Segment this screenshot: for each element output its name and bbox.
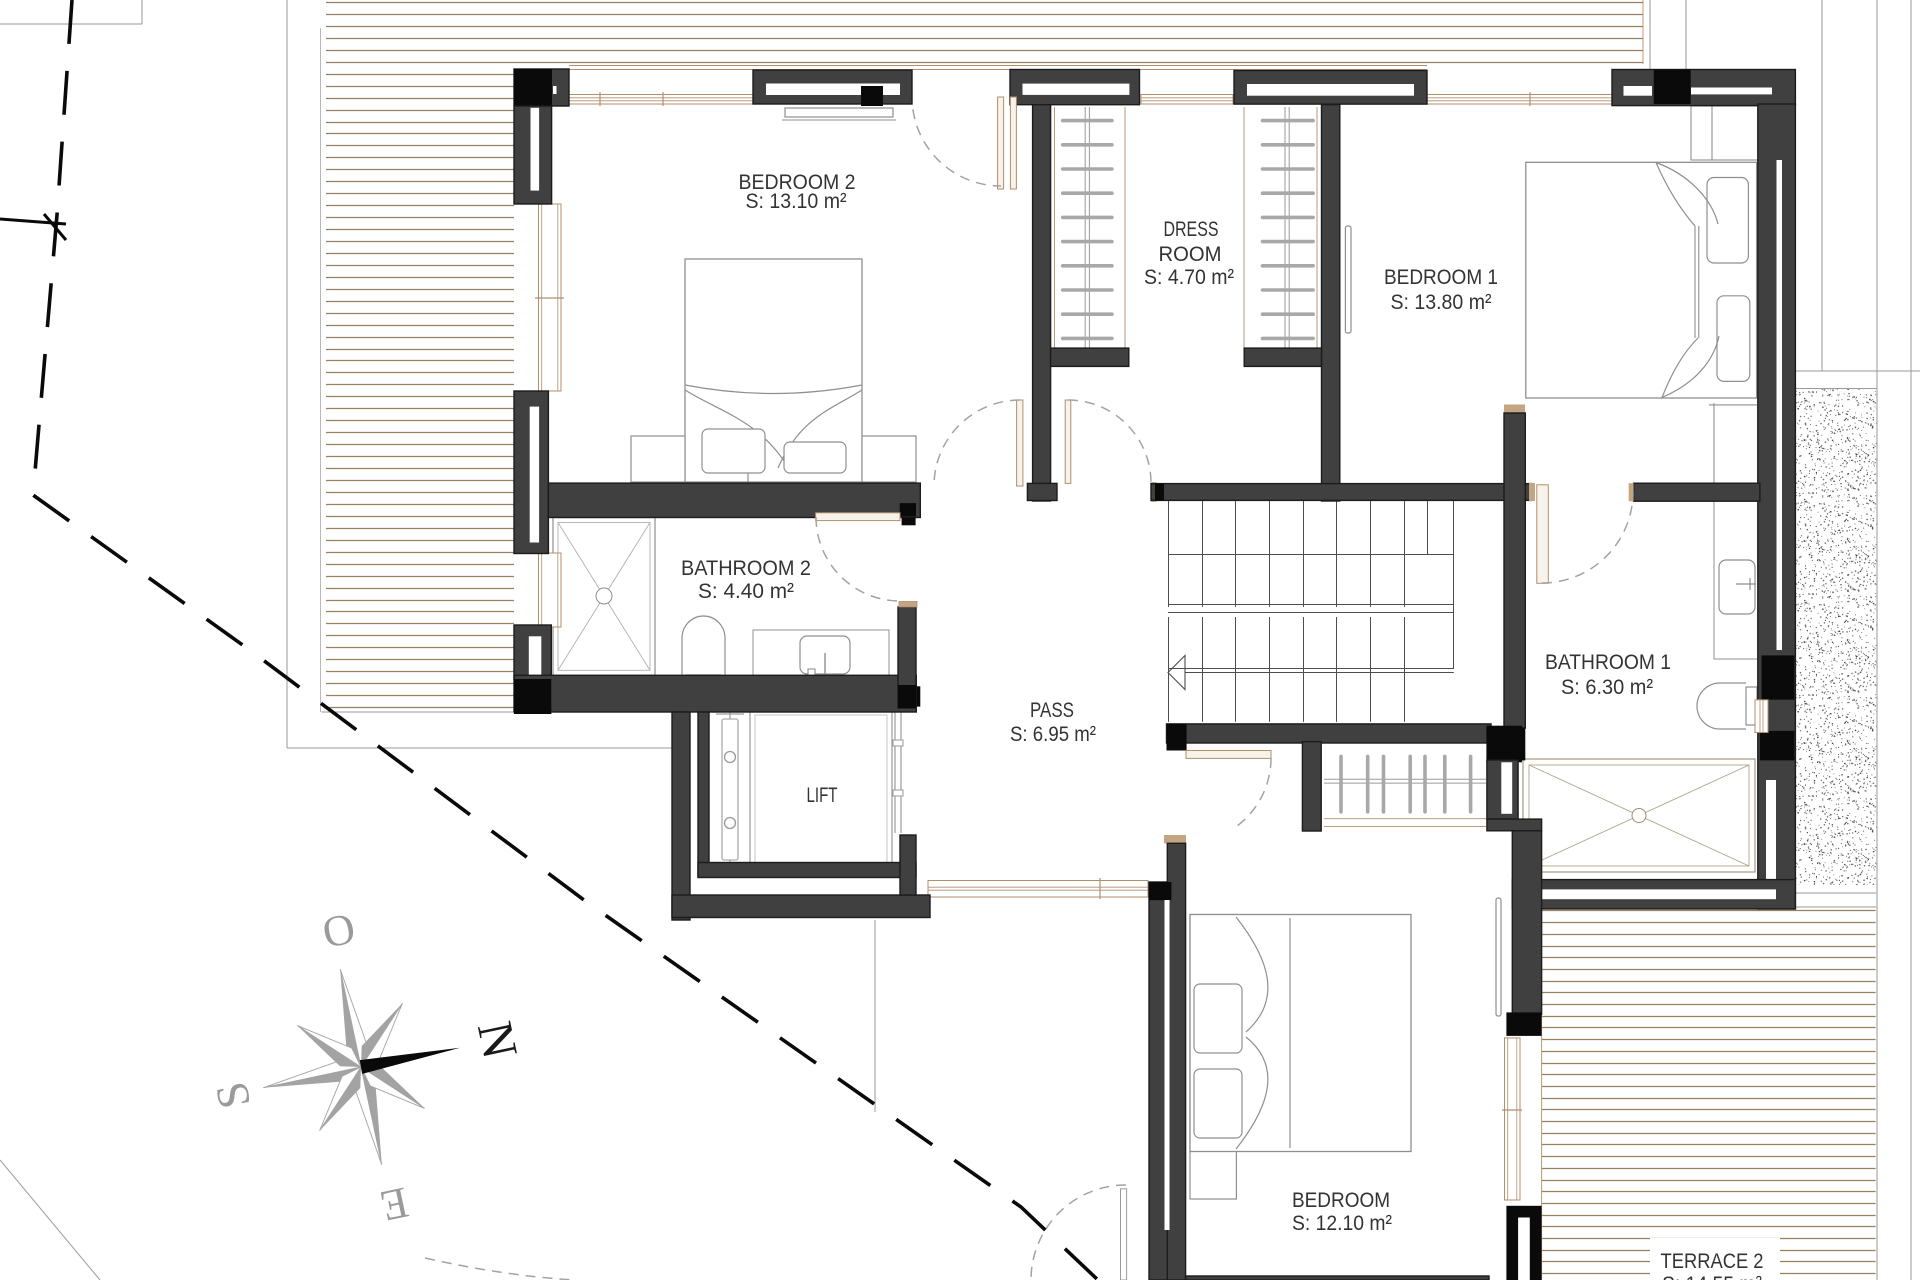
svg-text:LIFT: LIFT	[807, 784, 838, 807]
svg-text:TERRACE 2: TERRACE 2	[1661, 1249, 1764, 1273]
svg-text:BEDROOM 1: BEDROOM 1	[1384, 265, 1498, 289]
svg-text:PASS: PASS	[1030, 698, 1074, 722]
svg-text:BEDROOM: BEDROOM	[1292, 1188, 1390, 1212]
svg-text:ROOM: ROOM	[1159, 242, 1222, 266]
svg-text:S: 13.10 m²: S: 13.10 m²	[746, 189, 847, 213]
svg-text:BATHROOM 2: BATHROOM 2	[681, 556, 811, 580]
svg-text:S: 4.40 m²: S: 4.40 m²	[698, 579, 794, 603]
svg-text:DRESS: DRESS	[1164, 217, 1219, 241]
svg-text:S: 12.10 m²: S: 12.10 m²	[1292, 1211, 1392, 1235]
svg-text:S: 6.30 m²: S: 6.30 m²	[1561, 675, 1653, 699]
svg-text:S: 4.70 m²: S: 4.70 m²	[1144, 265, 1234, 289]
svg-text:S: 14.55 m²: S: 14.55 m²	[1662, 1272, 1762, 1280]
svg-text:BATHROOM 1: BATHROOM 1	[1545, 650, 1671, 674]
svg-text:S: 6.95 m²: S: 6.95 m²	[1010, 722, 1096, 746]
svg-text:S: 13.80 m²: S: 13.80 m²	[1391, 290, 1492, 314]
